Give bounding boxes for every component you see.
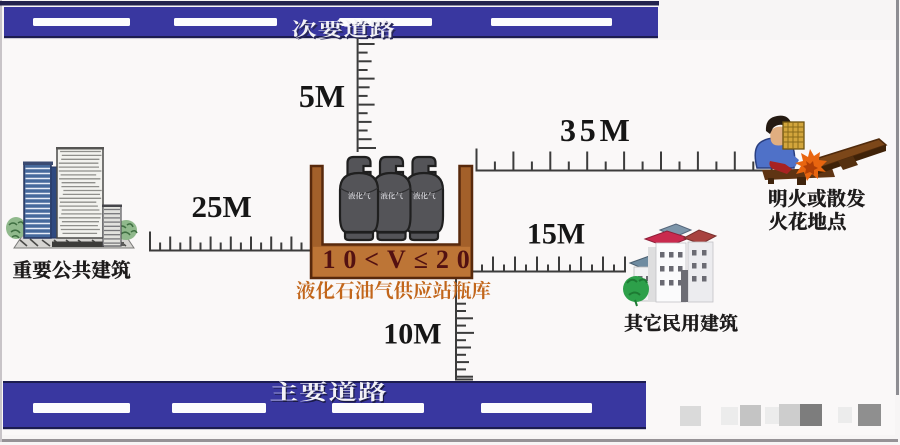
svg-text:5M: 5M <box>299 78 345 114</box>
svg-text:10M: 10M <box>383 318 441 351</box>
svg-text:10<V≤20: 10<V≤20 <box>323 245 478 274</box>
svg-text:25M: 25M <box>192 189 252 224</box>
svg-text:35M: 35M <box>560 112 634 148</box>
svg-text:15M: 15M <box>527 218 585 251</box>
